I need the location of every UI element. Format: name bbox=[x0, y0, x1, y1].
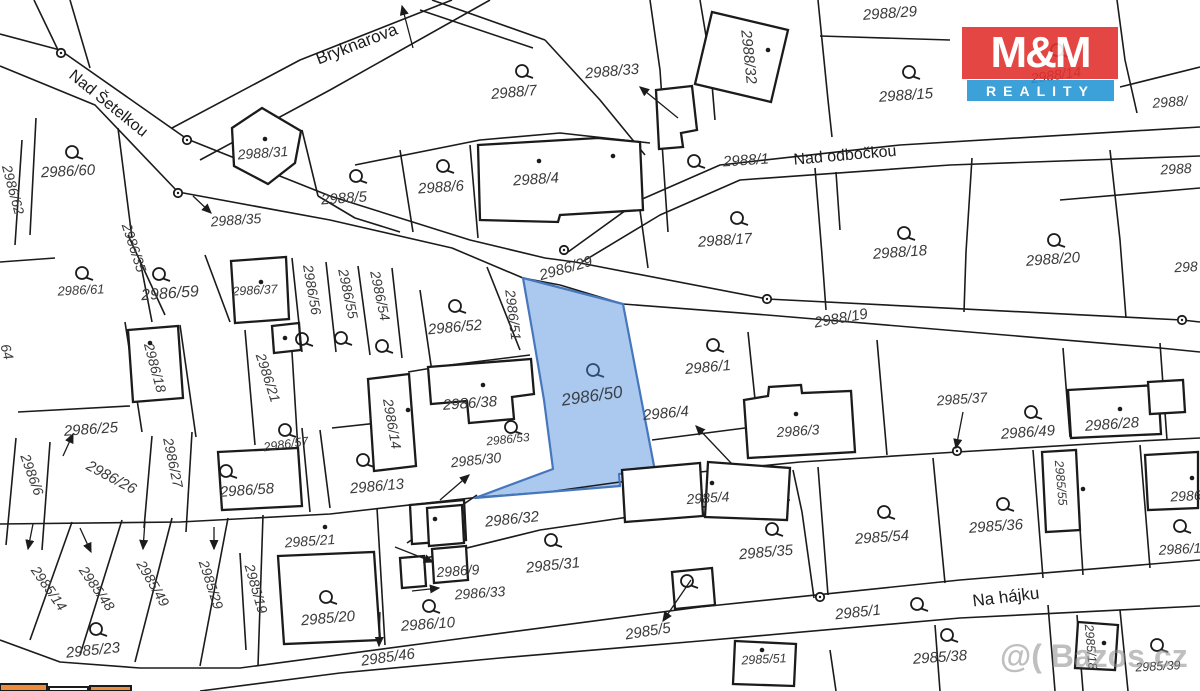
building-dot bbox=[1190, 476, 1195, 481]
building-dot bbox=[794, 412, 799, 417]
building-outline bbox=[278, 552, 380, 644]
cadastral-map: 2988/292988/332988/72988/322988/152988/1… bbox=[0, 0, 1200, 691]
parcel-label: 2986/37 bbox=[231, 282, 279, 298]
building-outline bbox=[1148, 380, 1185, 414]
building-dot bbox=[283, 336, 288, 341]
parcel-label: 298 bbox=[1173, 258, 1198, 275]
building-outline bbox=[218, 448, 302, 510]
building-dot bbox=[263, 137, 268, 142]
parcel-label: 2985/4 bbox=[685, 488, 730, 507]
parcel-label: 2986/3 bbox=[775, 421, 820, 440]
building-dot bbox=[710, 481, 715, 486]
building-dot bbox=[611, 154, 616, 159]
parcel-label: 2988/4 bbox=[511, 169, 559, 189]
parcel-label: 2986/60 bbox=[39, 162, 96, 182]
survey-node-center bbox=[766, 298, 768, 300]
survey-node-center bbox=[186, 139, 188, 141]
survey-node-center bbox=[177, 192, 179, 194]
survey-node-center bbox=[956, 450, 958, 452]
bazos-watermark: @( Bazos.cz bbox=[1000, 638, 1200, 675]
building-dot bbox=[481, 383, 486, 388]
building-outline bbox=[478, 138, 643, 222]
parcel-label: 2988/ bbox=[1151, 92, 1190, 111]
parcel-label: 2988/5 bbox=[319, 188, 368, 208]
parcel-label: 2986 bbox=[1169, 487, 1200, 505]
building-outline bbox=[400, 556, 426, 588]
logo-reality-text: REALITY bbox=[967, 80, 1114, 101]
survey-node-center bbox=[60, 52, 62, 54]
parcel-label: 2988/6 bbox=[416, 177, 465, 197]
building-dot bbox=[537, 159, 542, 164]
parcel-label: 2986/61 bbox=[56, 281, 105, 298]
survey-node-center bbox=[819, 596, 821, 598]
colored-building bbox=[0, 684, 47, 691]
parcel-label: 2986/9 bbox=[435, 561, 480, 580]
building-outline bbox=[672, 568, 715, 609]
survey-node-center bbox=[563, 249, 565, 251]
building-outline bbox=[427, 505, 464, 546]
survey-node-center bbox=[1181, 319, 1183, 321]
colored-building bbox=[90, 686, 131, 691]
parcel-label: 2988/1 bbox=[721, 150, 769, 170]
logo-mm-text: M&M bbox=[962, 27, 1118, 79]
building-dot bbox=[433, 517, 438, 522]
parcel-label: 2985/51 bbox=[740, 651, 787, 667]
building-dot bbox=[406, 408, 411, 413]
building-dot bbox=[323, 525, 328, 530]
colored-building bbox=[49, 687, 88, 691]
map-svg: 2988/292988/332988/72988/322988/152988/1… bbox=[0, 0, 1200, 691]
parcel-label: 2988 bbox=[1159, 160, 1192, 178]
building-dot bbox=[766, 48, 771, 53]
mm-reality-logo: M&M REALITY bbox=[962, 27, 1118, 101]
building-dot bbox=[1118, 407, 1123, 412]
parcel-label: 2986/1 bbox=[1157, 540, 1200, 558]
building-dot bbox=[1081, 487, 1086, 492]
